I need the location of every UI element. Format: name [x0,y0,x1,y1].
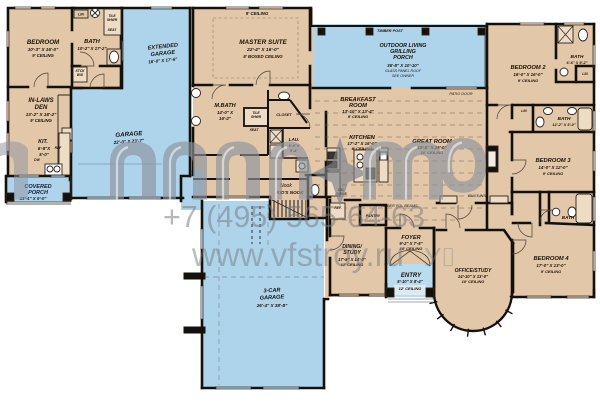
svg-text:3-CAR: 3-CAR [263,288,280,295]
svg-text:DEN: DEN [35,105,48,111]
svg-text:BEDROOM 3: BEDROOM 3 [535,158,571,164]
svg-text:GLASS PANEL ROOF: GLASS PANEL ROOF [385,69,422,73]
svg-text:BEDROOM 4: BEDROOM 4 [533,256,569,262]
svg-text:36'-8" X 10'-10": 36'-8" X 10'-10" [387,63,420,68]
svg-text:10' CEILING: 10' CEILING [462,279,485,284]
svg-text:9' CEILING: 9' CEILING [348,114,369,119]
svg-text:14'-0" X 12'-0": 14'-0" X 12'-0" [538,165,568,170]
svg-text:9' CEILING: 9' CEILING [518,78,539,83]
svg-text:SEAT: SEAT [108,28,118,32]
svg-text:KIT.: KIT. [38,139,48,145]
svg-text:TIMBER POST: TIMBER POST [377,29,404,33]
svg-text:+7 (495) 565-64-63: +7 (495) 565-64-63 [163,200,425,234]
svg-text:REF: REF [55,146,63,150]
svg-text:12' CEILING: 12' CEILING [399,286,422,291]
svg-text:CLOSET: CLOSET [276,113,292,117]
svg-text:У⌷: У⌷ [424,242,456,272]
svg-text:22'-4" X 16'-0": 22'-4" X 16'-0" [246,47,280,53]
svg-text:9' CEILING: 9' CEILING [32,53,54,58]
svg-text:9' CEILING: 9' CEILING [541,269,562,274]
svg-text:SEE OWNER: SEE OWNER [392,74,414,78]
svg-text:LIN: LIN [78,13,84,17]
svg-text:16'-2": 16'-2" [219,116,232,121]
svg-text:BATH: BATH [558,116,572,122]
svg-text:LIN: LIN [521,109,527,113]
svg-text:14'-0" X: 14'-0" X [217,110,234,115]
svg-text:9' CEILING: 9' CEILING [543,171,564,176]
svg-text:BEDROOM: BEDROOM [27,39,60,46]
svg-text:IN-LAWS: IN-LAWS [28,98,53,104]
svg-text:6'-8"X: 6'-8"X [38,146,51,151]
svg-text:www.vfstroy.ru: www.vfstroy.ru [191,236,404,273]
svg-text:9' CEILING: 9' CEILING [30,118,52,123]
svg-text:W/D: W/D [77,73,84,77]
svg-text:10'-3" X 16'-0": 10'-3" X 16'-0" [28,47,59,52]
svg-text:SHWR: SHWR [251,115,262,119]
svg-text:BATH: BATH [84,39,100,45]
svg-text:LIN: LIN [582,72,588,76]
svg-text:10'-2" X 17'-2": 10'-2" X 17'-2" [77,46,107,51]
svg-text:SEAT: SEAT [250,128,260,132]
svg-text:SHWR: SHWR [107,18,118,22]
svg-text:12'-2" X 5'-0": 12'-2" X 5'-0" [552,123,575,127]
svg-text:5'-0": 5'-0" [39,152,49,157]
svg-text:DW: DW [34,158,40,162]
svg-text:PORCH: PORCH [393,55,413,61]
svg-text:BEDROOM 2: BEDROOM 2 [510,65,546,71]
svg-text:17'-0" X 13'-0": 17'-0" X 13'-0" [536,263,566,268]
svg-text:8'-10" X 8'-4": 8'-10" X 8'-4" [397,279,424,284]
svg-text:8' BOXED CEILING: 8' BOXED CEILING [243,54,283,59]
svg-text:26'-4" X 38'-8": 26'-4" X 38'-8" [256,303,288,308]
svg-text:M.BATH: M.BATH [214,103,236,109]
svg-text:BUILT-INS: BUILT-INS [468,194,486,198]
svg-text:6'-6" X 9'-2": 6'-6" X 9'-2" [566,61,587,65]
svg-text:16'-0" X 16'-0": 16'-0" X 16'-0" [513,72,543,77]
svg-text:13'-2" X 18'-2": 13'-2" X 18'-2" [26,112,57,117]
svg-text:9' CEILING: 9' CEILING [246,11,269,16]
svg-text:BATH: BATH [562,215,575,220]
svg-text:BATH: BATH [571,54,585,60]
svg-text:PATIO DOOR: PATIO DOOR [449,92,473,96]
svg-text:LAU.: LAU. [289,137,300,142]
svg-text:MASTER SUITE: MASTER SUITE [239,39,287,46]
